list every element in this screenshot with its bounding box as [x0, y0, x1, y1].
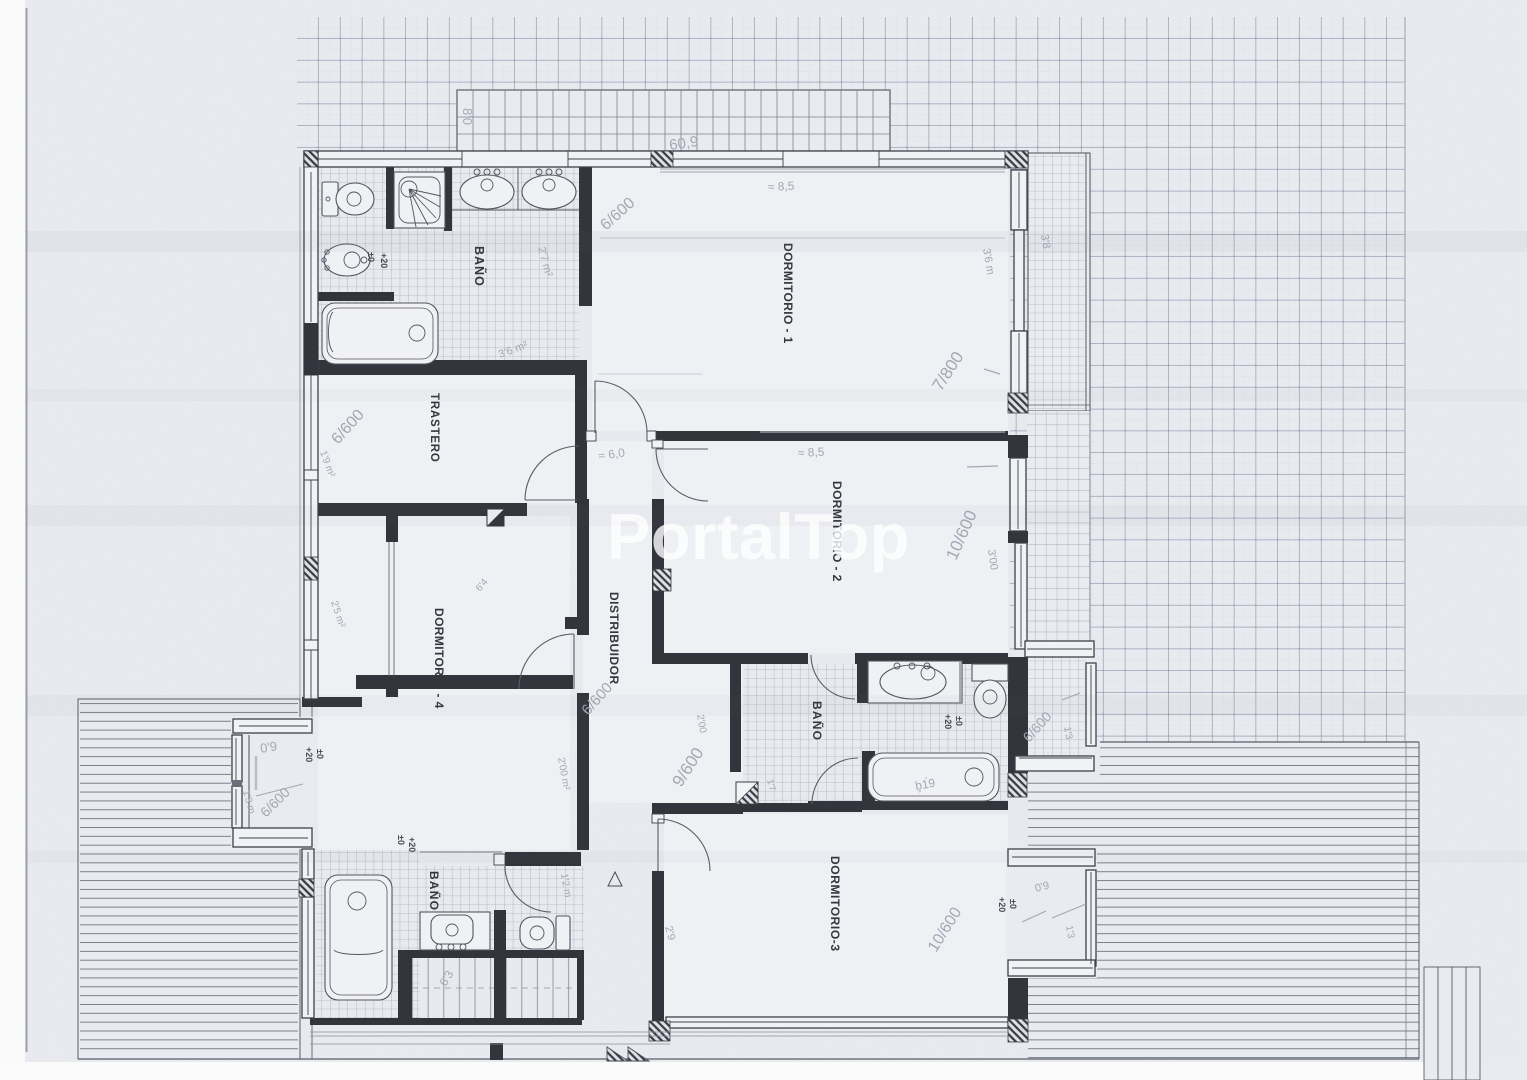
svg-text:±0: ±0 — [366, 252, 376, 262]
svg-text:±0: ±0 — [1008, 899, 1018, 909]
svg-text:≈ 8,5: ≈ 8,5 — [767, 179, 795, 194]
svg-text:+20: +20 — [943, 714, 953, 729]
svg-text:DORMITORIO-3: DORMITORIO-3 — [828, 856, 842, 952]
svg-text:±0: ±0 — [954, 716, 964, 726]
svg-text:+20: +20 — [407, 837, 417, 852]
svg-text:1'3: 1'3 — [1063, 925, 1076, 940]
svg-text:BAÑO: BAÑO — [472, 246, 487, 287]
svg-text:+20: +20 — [304, 747, 314, 762]
svg-text:1'3: 1'3 — [1061, 726, 1074, 741]
svg-text:+20: +20 — [997, 897, 1007, 912]
svg-text:TRASTERO: TRASTERO — [428, 393, 440, 463]
svg-text:BAÑO: BAÑO — [427, 871, 442, 911]
svg-text:+20: +20 — [379, 253, 389, 268]
svg-text:DORMITORIO - 1: DORMITORIO - 1 — [781, 243, 795, 344]
svg-text:DORMITORIO - 4: DORMITORIO - 4 — [432, 608, 446, 709]
svg-text:DISTRIBUIDOR: DISTRIBUIDOR — [607, 592, 621, 685]
svg-text:±0: ±0 — [315, 749, 325, 759]
svg-text:0'9: 0'9 — [259, 738, 278, 756]
svg-text:±0: ±0 — [396, 835, 406, 845]
svg-text:≈ 8,5: ≈ 8,5 — [797, 445, 825, 460]
svg-text:PortalTop: PortalTop — [607, 500, 910, 573]
svg-text:8'0: 8'0 — [460, 108, 475, 125]
